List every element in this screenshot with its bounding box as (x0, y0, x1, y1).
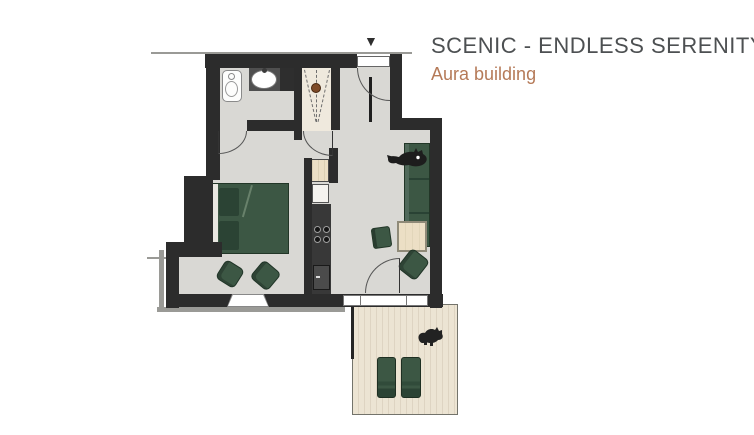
toilet-bowl (225, 81, 238, 97)
animal-icon (416, 325, 444, 348)
page-title: SCENIC - ENDLESS SERENITY + (431, 33, 754, 59)
terrace-edge (351, 304, 354, 359)
bathroom-cabinet (280, 68, 294, 91)
sink-handle (316, 276, 320, 278)
exterior-outline-left (159, 250, 164, 312)
coffee-table (397, 221, 427, 252)
exterior-outline-bottom (157, 307, 345, 312)
sun-lounger (401, 357, 421, 398)
toilet-flush (228, 73, 235, 80)
window-mullion (360, 295, 361, 306)
building-name: Aura building (431, 64, 536, 85)
wall-segment (184, 176, 213, 250)
bedroom-window-glass (228, 295, 268, 306)
armchair (371, 226, 393, 249)
floor-plan-page: ▼ SCENIC - ENDLESS SERENITY + Aura build… (0, 0, 754, 435)
pillow (219, 188, 239, 216)
wall-segment (166, 242, 179, 308)
burner-icon (314, 226, 321, 233)
tap-icon (262, 68, 267, 73)
wall-segment (247, 120, 302, 131)
kitchen-appliance (312, 184, 329, 203)
wardrobe-rail-knob-icon (311, 83, 321, 93)
entrance-marker-icon: ▼ (364, 33, 378, 49)
pillow (219, 221, 239, 250)
burner-icon (314, 236, 321, 243)
sun-lounger (377, 357, 396, 398)
wall-segment (331, 54, 340, 130)
wardrobe-dash-center (316, 70, 317, 122)
living-window (343, 295, 428, 306)
toilet (222, 70, 242, 102)
burner-icon (323, 226, 330, 233)
burner-icon (323, 236, 330, 243)
window-mullion (406, 295, 407, 306)
wall-segment (430, 118, 442, 308)
kitchen-sink (313, 265, 330, 290)
bed (212, 183, 289, 254)
wall-segment (206, 54, 220, 180)
wall-segment (304, 158, 312, 294)
bedroom-window (227, 294, 269, 307)
entry-door (357, 56, 390, 67)
cat-icon (386, 145, 432, 176)
blanket-fold (242, 185, 253, 217)
